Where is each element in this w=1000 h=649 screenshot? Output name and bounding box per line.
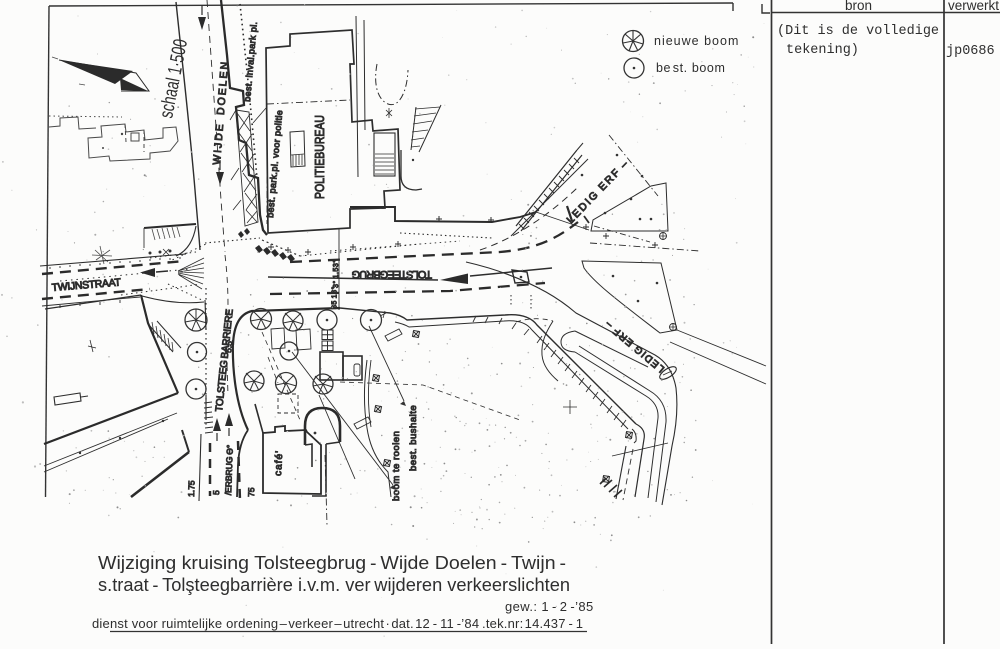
svg-text:nieuwe boom: nieuwe boom bbox=[654, 34, 739, 48]
svg-text:be st. boom: be st. boom bbox=[656, 61, 726, 75]
svg-text:5.5: 5.5 bbox=[223, 340, 234, 353]
svg-text:dienst voor ruimtelijke ordeni: dienst voor ruimtelijke ordening – verke… bbox=[92, 616, 583, 631]
svg-text:tekening): tekening) bbox=[786, 43, 859, 58]
svg-text:POLITIEBUREAU: POLITIEBUREAU bbox=[312, 115, 327, 199]
svg-text:/ERBRUG Ɵ°: /ERBRUG Ɵ° bbox=[223, 445, 235, 497]
svg-text:(Dit is de volledige: (Dit is de volledige bbox=[777, 24, 939, 39]
svg-text:75: 75 bbox=[246, 487, 256, 497]
svg-text:verwerkt: verwerkt bbox=[948, 0, 999, 13]
svg-text:gew.: 1 - 2 -’85: gew.: 1 - 2 -’85 bbox=[505, 599, 594, 614]
svg-text:TWIJNSTRAAT: TWIJNSTRAAT bbox=[51, 276, 124, 294]
svg-text:LEDIG ERF –: LEDIG ERF – bbox=[565, 157, 632, 226]
svg-text:bron: bron bbox=[845, 0, 872, 13]
svg-text:WIJDE DOELEN: WIJDE DOELEN bbox=[211, 60, 231, 166]
svg-text:35 13°: 35 13° bbox=[331, 286, 339, 309]
svg-text:3° 1.53°: 3° 1.53° bbox=[332, 259, 340, 288]
svg-text:s.traat - Tolşteegbarrière i.v: s.traat - Tolşteegbarrière i.v.m. ver wi… bbox=[98, 574, 570, 595]
svg-text:best. bushalte: best. bushalte bbox=[408, 405, 419, 471]
svg-text:Wijziging kruising Tolsteegbru: Wijziging kruising Tolsteegbrug - Wijde … bbox=[98, 552, 566, 573]
svg-text:5: 5 bbox=[211, 490, 221, 495]
svg-text:best. inval.park pl.: best. inval.park pl. bbox=[242, 21, 259, 102]
svg-text:LEDIG ERF –: LEDIG ERF – bbox=[602, 318, 667, 375]
svg-text:caféʹ: caféʹ bbox=[273, 450, 285, 476]
svg-text:jp0686: jp0686 bbox=[946, 44, 995, 59]
svg-text:TOLSTEEGBRUG: TOLSTEEGBRUG bbox=[350, 268, 432, 280]
svg-text:1.75: 1.75 bbox=[186, 480, 197, 497]
svg-text:boom te rooien: boom te rooien bbox=[391, 431, 402, 501]
